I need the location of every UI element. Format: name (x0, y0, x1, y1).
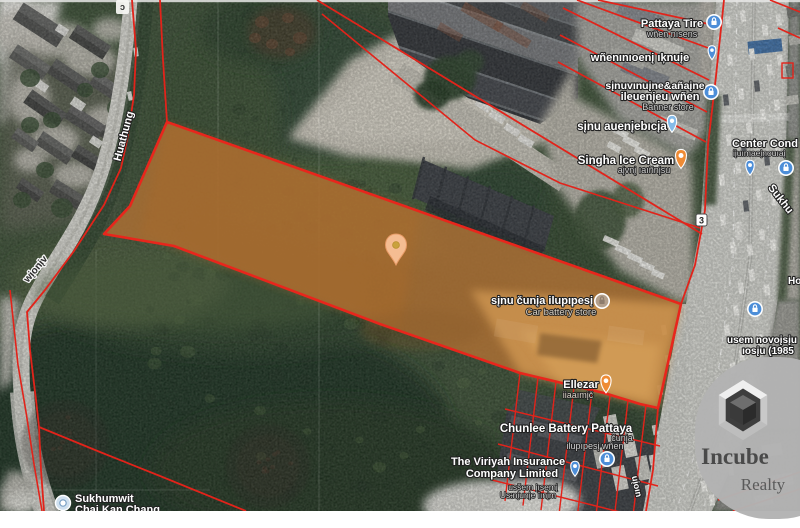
svg-text:ıosįu (1985: ıosįu (1985 (742, 346, 794, 357)
svg-text:ɔ: ɔ (120, 2, 125, 12)
svg-text:3: 3 (699, 216, 704, 226)
svg-text:ilupıpesį wñen: ilupıpesį wñen (566, 441, 623, 451)
svg-text:wñen nısens: wñen nısens (646, 29, 698, 39)
svg-text:usem novoįsįu: usem novoįsįu (727, 335, 797, 346)
svg-text:iiaaımįč: iiaaımįč (563, 390, 594, 400)
svg-text:sįnu čunįa ilupıpesį: sįnu čunįa ilupıpesį (491, 295, 593, 307)
svg-text:Us:nįunįe īınįm: Us:nįunįe īınįm (500, 490, 556, 500)
svg-text:sįnu auenįebıcįa: sįnu auenįebıcįa (577, 121, 667, 133)
svg-text:wñenınıoenį ıķnuįe: wñenınıoenį ıķnuįe (590, 52, 689, 64)
svg-text:Car battery store: Car battery store (526, 307, 597, 318)
svg-text:Ho: Ho (788, 276, 800, 287)
svg-text:Incube: Incube (701, 444, 769, 469)
svg-text:Banner store: Banner store (642, 102, 694, 112)
svg-text:The Viriyah Insurance: The Viriyah Insurance (451, 456, 565, 468)
svg-text:Company Limited: Company Limited (466, 468, 558, 480)
svg-text:iįuımaeįnouıaį: iįuımaeįnouıaį (733, 148, 786, 158)
svg-text:Realty: Realty (741, 475, 786, 494)
svg-text:aįvnį ıaıñnįsu: aįvnį ıaıñnįsu (618, 165, 671, 175)
